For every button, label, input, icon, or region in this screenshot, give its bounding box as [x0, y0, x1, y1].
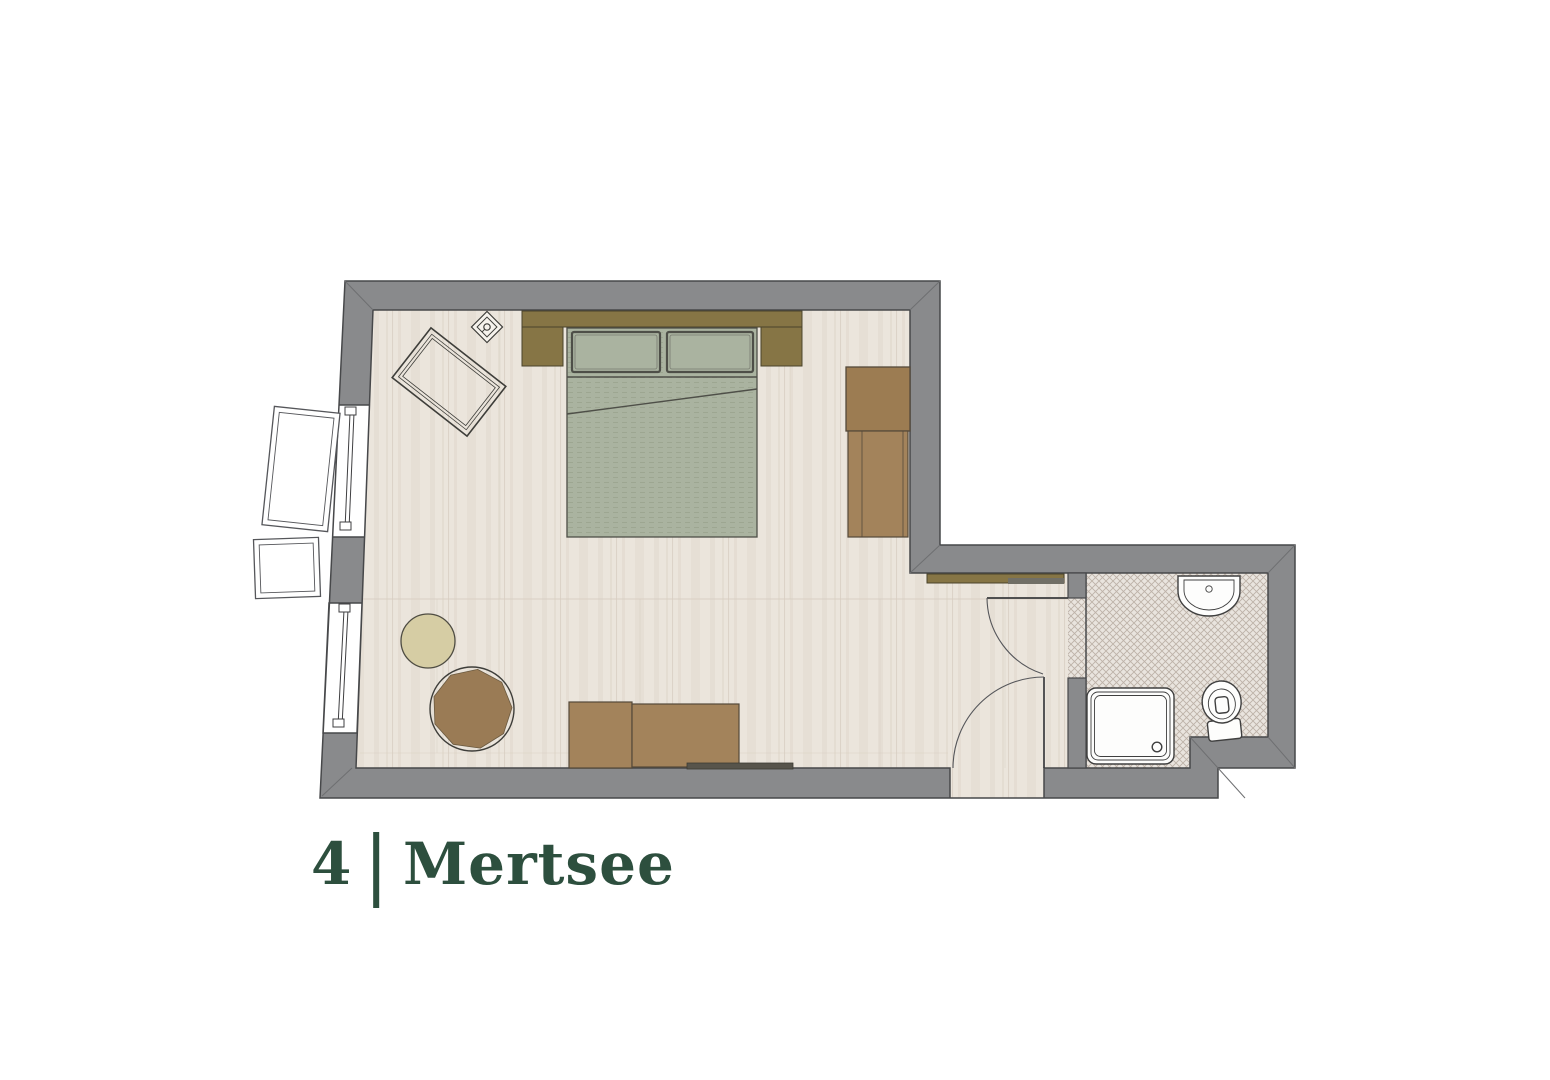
window-bottom-open-sash — [253, 537, 320, 598]
shower-drain — [1152, 742, 1162, 752]
radiator — [687, 763, 793, 769]
bench — [569, 702, 739, 768]
floor-plan — [0, 0, 1550, 1080]
bathroom-partition-lower — [1068, 678, 1086, 768]
bench-left — [569, 702, 632, 768]
room-name: Mertsee — [403, 830, 675, 898]
room-number: 4 — [311, 830, 352, 898]
nightstand-left — [522, 327, 563, 366]
shower — [1087, 688, 1174, 764]
wardrobe — [846, 367, 910, 537]
pouf — [430, 667, 514, 751]
luggage-rack — [927, 574, 1064, 584]
bench-right — [632, 704, 739, 767]
headboard — [522, 311, 802, 327]
pillow-left — [572, 332, 660, 372]
wardrobe-base — [848, 431, 908, 537]
round-side-table — [401, 614, 455, 668]
pillow-right — [667, 332, 753, 372]
nightstand-right — [761, 327, 802, 366]
window-top — [262, 406, 356, 531]
bathroom-partition-upper — [1068, 573, 1086, 598]
wardrobe-top — [846, 367, 910, 431]
room-title: 4 | Mertsee — [311, 830, 675, 898]
window-top-open-sash — [262, 406, 340, 531]
floor-plan-canvas — [0, 0, 1550, 1080]
